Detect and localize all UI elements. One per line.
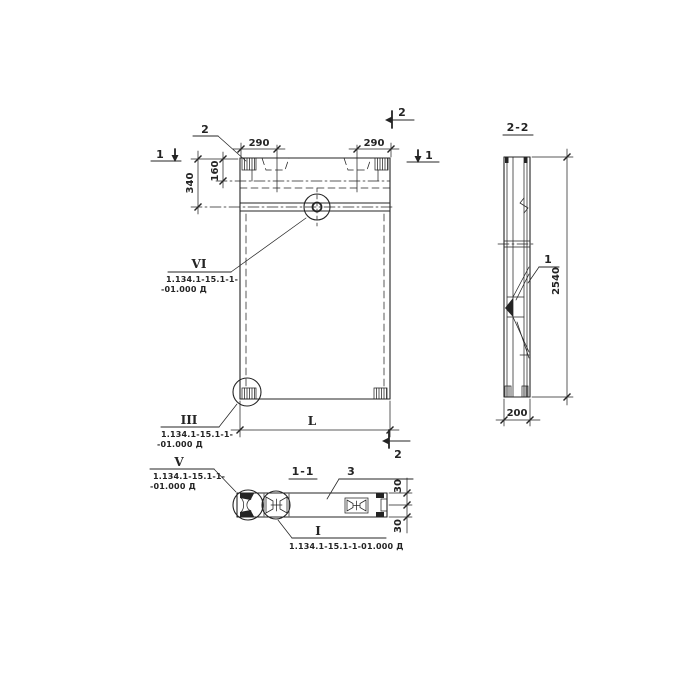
dim-length-label: L <box>308 414 317 428</box>
detail-callout-i: I 1.134.1-15.1-1-01.000 Д <box>278 520 404 551</box>
dim-160: 160 <box>210 152 227 188</box>
dim-2540: 2540 <box>532 149 573 405</box>
detail-vi-doc1: 1.134.1-15.1-1- <box>166 275 238 284</box>
drawing-sheet: 290 290 2 1 1 <box>0 0 700 700</box>
detail-iii-doc2: -01.000 Д <box>157 440 203 449</box>
rib-callout-label: 1 <box>544 253 552 266</box>
dim-30-bottom-label: 30 <box>393 519 404 533</box>
detail-i-label: I <box>315 524 321 538</box>
embed-plate-top-right <box>375 158 388 170</box>
view-title-1-1-label: 1-1 <box>292 465 315 478</box>
dim-340-label: 340 <box>185 173 196 194</box>
technical-drawing: 290 290 2 1 1 <box>0 0 700 700</box>
embed-plate-bottom-right <box>374 388 387 399</box>
section-mark-2-bottom: 2 <box>382 430 410 461</box>
detail-vi-doc2: -01.000 Д <box>161 285 207 294</box>
dim-30-stack: 30 30 <box>389 478 412 533</box>
detail-iii-doc1: 1.134.1-15.1-1- <box>161 430 233 439</box>
dim-200: 200 <box>496 399 540 426</box>
side-view-2-2: 2-2 <box>496 121 573 426</box>
dim-30-top-label: 30 <box>393 479 404 493</box>
detail-iii-label: III <box>181 413 198 427</box>
section-view-1-1: 1-1 3 <box>150 455 413 551</box>
section-mark-2-top: 2 <box>385 106 414 128</box>
detail-v-doc1: 1.134.1-15.1-1- <box>153 472 225 481</box>
section-mark-top-label: 2 <box>398 106 406 119</box>
dim-160-label: 160 <box>210 161 221 182</box>
dim-340: 340 <box>185 151 238 214</box>
view-title-2-2-label: 2-2 <box>507 121 530 134</box>
dim-2540-label: 2540 <box>551 267 562 295</box>
dim-290-right: 290 <box>349 138 399 192</box>
detail-v-label: V <box>173 455 184 469</box>
detail-callout-vi: VI 1.134.1-15.1-1- -01.000 Д <box>161 218 306 294</box>
slab-callout-label: 3 <box>347 465 355 478</box>
detail-callout-v: V 1.134.1-15.1-1- -01.000 Д <box>150 455 236 492</box>
section-arrow-left-label: 1 <box>156 148 164 161</box>
section-arrow-1-left: 1 <box>151 148 181 162</box>
dim-290-left-label: 290 <box>249 138 270 149</box>
dim-290-left: 290 <box>233 138 285 192</box>
right-end-channel <box>376 493 387 517</box>
embed-callout-label: 2 <box>201 123 209 136</box>
detail-i-doc: 1.134.1-15.1-1-01.000 Д <box>289 542 404 551</box>
rib-diaphragm <box>505 267 529 358</box>
section-arrow-1-right: 1 <box>407 149 439 163</box>
section-arrow-right-label: 1 <box>425 149 433 162</box>
dim-length: L <box>231 401 399 437</box>
dim-290-right-label: 290 <box>364 138 385 149</box>
middle-slot <box>345 498 368 513</box>
front-view: 290 290 2 1 1 <box>151 106 439 461</box>
section-mark-bottom-label: 2 <box>394 448 402 461</box>
detail-v-doc2: -01.000 Д <box>150 482 196 491</box>
detail-vi-label: VI <box>191 257 207 271</box>
embed-plate-bottom-left <box>242 388 256 399</box>
view-title-1-1: 1-1 <box>289 465 317 479</box>
notch-right <box>344 158 371 170</box>
view-title-2-2: 2-2 <box>503 121 533 135</box>
detail-callout-iii: III 1.134.1-15.1-1- -01.000 Д <box>157 404 237 449</box>
keyway-detail <box>262 491 290 519</box>
dim-200-label: 200 <box>507 408 528 419</box>
side-embed-bottom-left <box>505 386 511 397</box>
notch-left <box>262 158 289 170</box>
